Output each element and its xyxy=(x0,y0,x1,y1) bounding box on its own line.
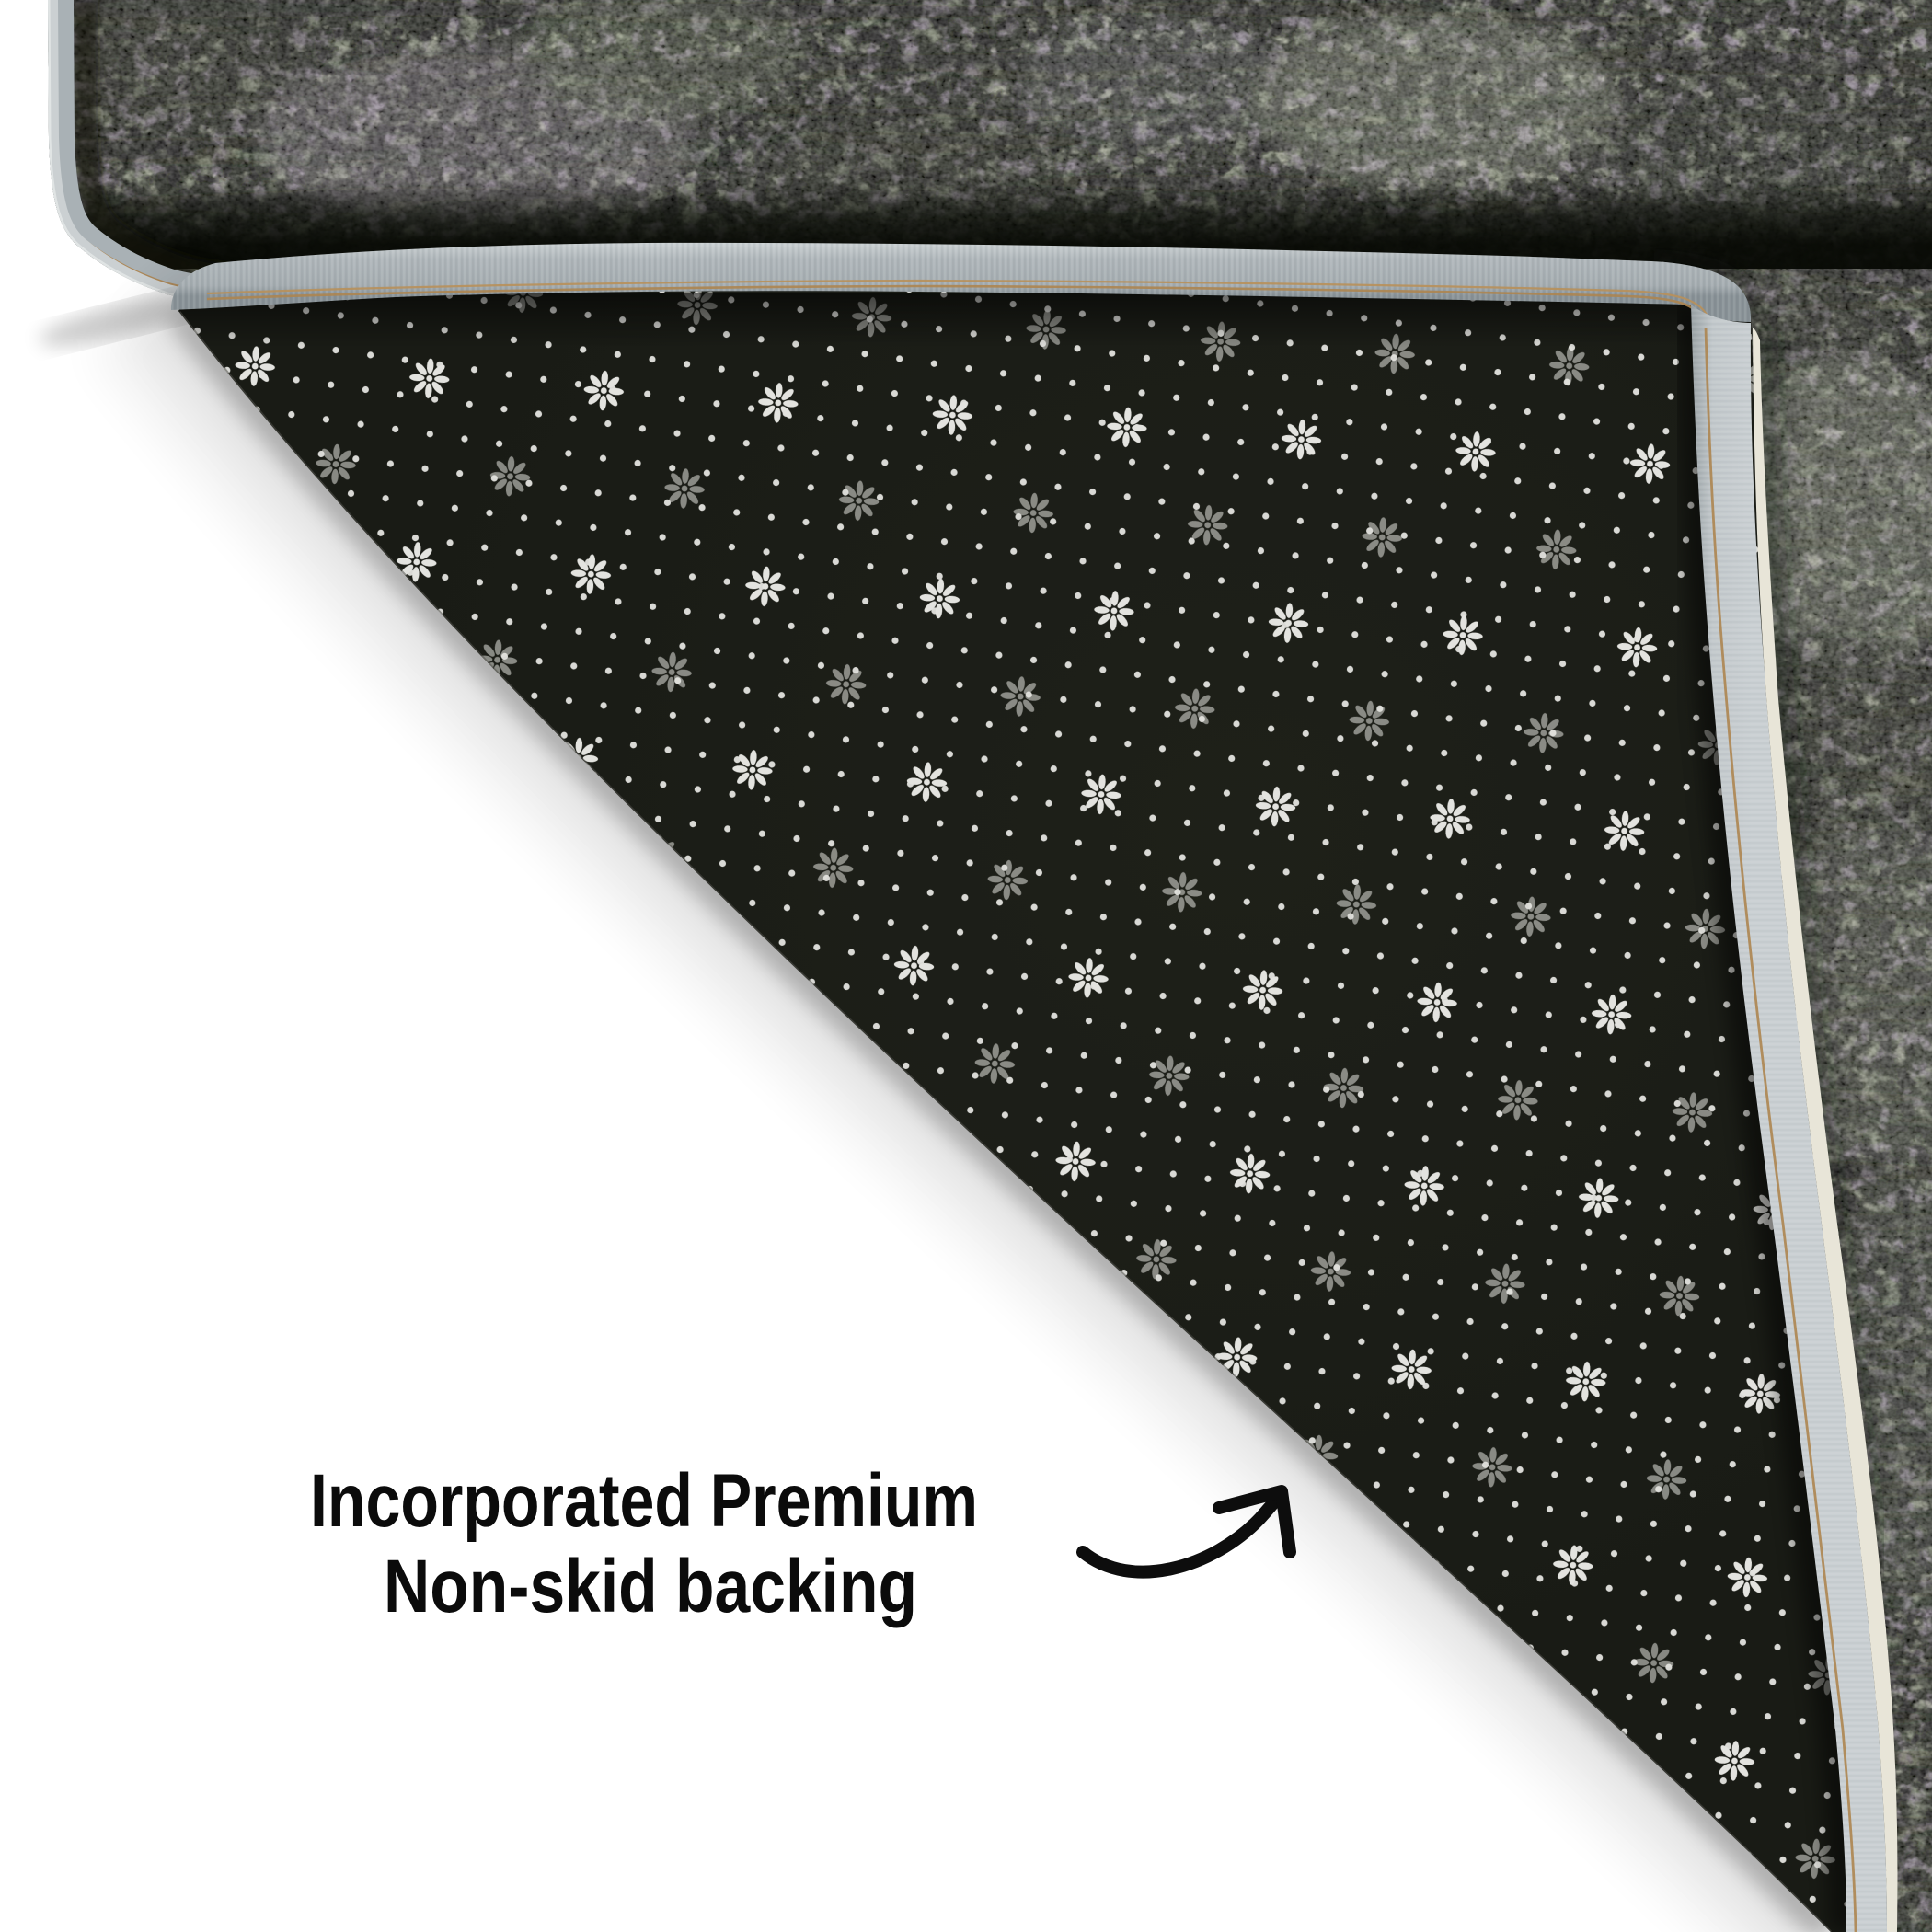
svg-text:Non-skid backing: Non-skid backing xyxy=(384,1545,917,1628)
svg-text:Incorporated Premium: Incorporated Premium xyxy=(310,1459,978,1543)
